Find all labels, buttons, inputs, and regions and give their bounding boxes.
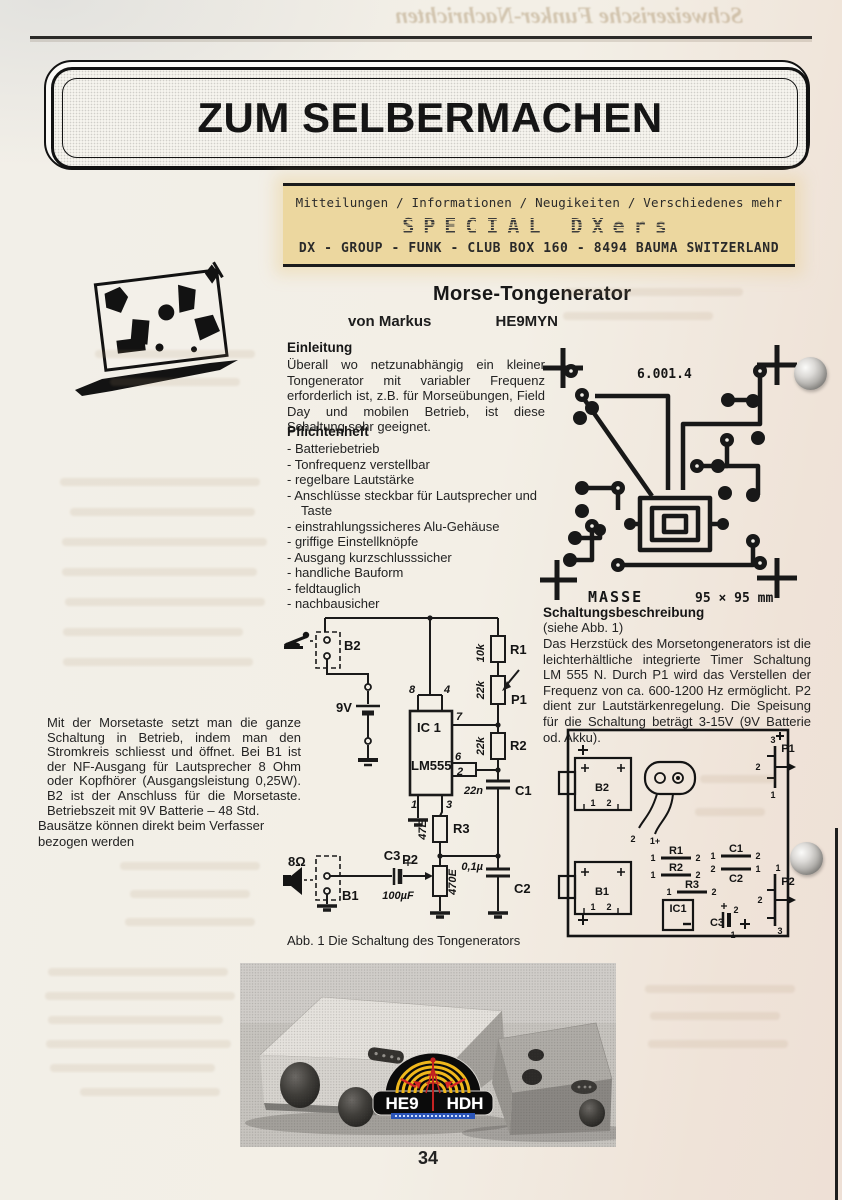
c3-pin2: 2 [733,905,738,915]
ground-p2 [430,913,450,917]
p2-value: 470E [447,868,459,895]
pin8-label: 8 [409,684,416,696]
p1-pin2: 2 [755,762,760,772]
speaker-impedance: 8Ω [288,854,306,869]
pcb-ground-label: MASSE [588,588,643,606]
bleedthrough-smudge [563,312,713,320]
betrieb-section: Mit der Morsetaste setzt man die ganze S… [47,716,301,818]
banner-club-name: SPECIAL DXers [283,214,795,238]
b1-pin1: 1 [590,902,595,912]
beschreibung-heading: Schaltungsbeschreibung [543,605,811,620]
r2-body [491,733,505,759]
bausatz-note: Bausätze können direkt beim Verfasser be… [38,818,300,849]
r3-pin1: 1 [666,887,671,897]
fastener-sphere [794,357,827,390]
top-rule [30,36,812,39]
c2-layout-label: C2 [729,873,743,885]
c3-pin1: 1 [730,930,735,940]
battery-clip [639,762,695,834]
p2-trimmer: 1 2 3 P2 [757,863,796,936]
bleedthrough-smudge [45,992,235,1000]
r3-label: R3 [453,821,470,836]
pin1-label: 1 [411,799,417,811]
bleedthrough-smudge [110,378,240,386]
knob [338,1087,374,1127]
list-item: regelbare Lautstärke [287,472,553,488]
pin7-label: 7 [456,711,463,723]
p2-label: P2 [402,852,418,867]
page-edge [835,828,838,1200]
clip-pad1: 1+ [650,836,660,846]
r3-body [433,816,447,842]
b2-connector: B2 1 2 [559,758,631,810]
r3-part: R3 1 2 [666,879,716,897]
bleedthrough-smudge [120,862,260,870]
bleedthrough-smudge [648,1040,788,1048]
ic-ref-label: IC 1 [417,720,441,735]
pin3-label: 3 [446,799,452,811]
pcb-layout-figure: 6.001.4 [540,338,820,610]
c3-label: C3 [384,848,401,863]
p2-body [433,866,447,896]
ic-type-label: LM555 [411,758,451,773]
battery-label: 9V [336,700,352,715]
b1-pin2: 2 [606,902,611,912]
p1-layout-label: P1 [781,743,794,755]
bleedthrough-smudge [650,1012,780,1020]
p2-pin2: 2 [757,895,762,905]
r2-label: R2 [510,738,527,753]
bleedthrough-smudge [62,538,267,546]
bleedthrough-smudge [95,350,255,358]
b2-layout-label: B2 [595,782,609,794]
bleedthrough-smudge [700,775,775,783]
byline-callsign: HE9MYN [495,313,558,330]
page-number: 34 [398,1148,458,1169]
morse-key-icon [284,632,309,649]
bleedthrough-smudge [563,288,743,296]
club-banner: Mitteilungen / Informationen / Neugikeit… [283,183,795,267]
r3-value: 47E [417,820,429,841]
byline-author: von Markus [348,313,431,330]
right-enclosure [492,1023,612,1135]
pin6-label: 6 [455,751,462,763]
r1-label: R1 [510,642,527,657]
c2-label: C2 [514,881,531,896]
pcb-part-number: 6.001.4 [637,367,692,382]
list-item: handliche Bauform [287,565,553,581]
einleitung-heading: Einleitung [287,340,545,355]
p1-pin3: 3 [770,735,775,745]
ground-b1 [317,906,337,910]
bleedthrough-smudge [50,1064,215,1072]
bleedthrough-smudge [60,478,260,486]
c1-pin1: 1 [710,851,715,861]
c3-part: C3 2 1 [710,903,739,940]
list-item: Batteriebetrieb [287,441,553,457]
c2-pin2: 2 [710,864,715,874]
r1-value: 10k [475,643,487,662]
pflichtenheft-heading: Pflichtenheft [287,424,553,439]
p2-pin1: 1 [775,863,780,873]
bleedthrough-smudge [63,658,253,666]
b1-label: B1 [342,888,359,903]
b1-layout-label: B1 [595,886,609,898]
r3-layout-label: R3 [685,879,699,891]
list-item: Tonfrequenz verstellbar [287,457,553,473]
bleedthrough-smudge [63,628,243,636]
betrieb-body: Mit der Morsetaste setzt man die ganze S… [47,716,301,818]
masthead-title: ZUM SELBERMACHEN [197,94,662,142]
bleedthrough-smudge [65,598,265,606]
byline: von Markus HE9MYN [348,313,558,330]
c1-plates [486,781,510,788]
bleedthrough-smudge [48,1016,223,1024]
r3-pin2: 2 [711,887,716,897]
c1-part: C1 1 2 [710,843,760,861]
list-item: feldtauglich [287,581,553,597]
c2-plates [486,869,510,876]
fastener-sphere [790,842,823,875]
masthead-box: ZUM SELBERMACHEN [44,60,810,170]
bleedthrough-smudge [695,808,765,816]
r1-body [491,636,505,662]
pin4-label: 4 [443,684,450,696]
pflichtenheft-section: Pflichtenheft Batteriebetrieb Tonfrequen… [287,424,553,612]
magazine-page: Schweizerische Funker-Nachrichten ZUM SE… [0,0,842,1200]
bleedthrough-smudge [48,968,228,976]
circuit-board-artwork [70,268,275,408]
p1-label: P1 [511,692,527,707]
list-item: Ausgang kurzschlusssicher [287,550,553,566]
knob [280,1062,320,1108]
c1-pin2: 2 [755,851,760,861]
knob [522,1069,542,1085]
r1-pin1: 1 [650,853,655,863]
p2-layout-label: P2 [781,876,794,888]
ic1-layout-label: IC1 [669,903,686,915]
logo-callsign-left: HE9 [385,1094,418,1113]
c3-value: 100µF [382,890,414,902]
banner-address: DX - GROUP - FUNK - CLUB BOX 160 - 8494 … [283,241,795,256]
einleitung-section: Einleitung Überall wo netzunabhängig ein… [287,340,545,435]
r2-pin1: 1 [650,870,655,880]
c1-layout-label: C1 [729,843,743,855]
bleedthrough-smudge [70,508,255,516]
banner-subtitle: Mitteilungen / Informationen / Neugikeit… [283,195,795,210]
bleedthrough-smudge [62,568,257,576]
bleedthrough-smudge [46,1040,231,1048]
bleedthrough-smudge [645,985,795,993]
p1-value: 22k [475,680,487,700]
c2-part: C2 2 1 [710,864,760,885]
list-item: einstrahlungssicheres Alu-Gehäuse [287,519,553,535]
figure-caption: Abb. 1 Die Schaltung des Tongenerators [287,933,520,948]
pcb-dimensions: 95 × 95 mm [695,591,773,606]
c2-value: 0,1µ [461,861,483,873]
b2-pin2: 2 [606,798,611,808]
masthead-halftone: ZUM SELBERMACHEN [51,67,809,169]
r1-pin2: 2 [695,853,700,863]
ic1-part: IC1 [663,900,693,930]
pin2-label: 2 [456,766,463,778]
r2-part: R2 1 2 [650,862,700,880]
bleedthrough-smudge [80,1088,220,1096]
b2-label: B2 [344,638,361,653]
knob [579,1099,605,1127]
clip-pad2: 2 [630,834,635,844]
bleedthrough-title: Schweizerische Funker-Nachrichten [304,3,834,29]
ground-c2 [488,913,508,917]
list-item: Anschlüsse steckbar für Lautsprecher und… [287,488,553,519]
list-item: griffige Einstellknöpfe [287,534,553,550]
r1-part: R1 1 2 [650,845,700,863]
b2-pin1: 1 [590,798,595,808]
beschreibung-subheading: (siehe Abb. 1) [543,620,811,635]
knob [528,1049,544,1061]
schematic-figure: B2 9V IC 1 LM555 8 4 7 6 2 1 3 R1 10k P1 [280,598,546,940]
logo-callsign-right: HDH [447,1094,484,1113]
p2-pin3: 3 [777,926,782,936]
c2-pin1: 1 [755,864,760,874]
r2-layout-label: R2 [669,862,683,874]
speaker-icon [283,867,302,895]
club-logo: HE9 HDH [371,1047,495,1121]
c1-value: 22n [463,785,483,797]
p1-trimmer: 3 2 1 P1 [755,735,796,800]
bleedthrough-smudge [130,890,250,898]
b1-connector: B1 1 2 [559,862,631,914]
c1-label: C1 [515,783,532,798]
bleedthrough-smudge [125,918,255,926]
r1-layout-label: R1 [669,845,683,857]
p1-pin1: 1 [770,790,775,800]
r2-value: 22k [475,736,487,756]
component-layout-figure: B2 1 2 B1 1 2 2 1+ 3 [545,722,797,944]
